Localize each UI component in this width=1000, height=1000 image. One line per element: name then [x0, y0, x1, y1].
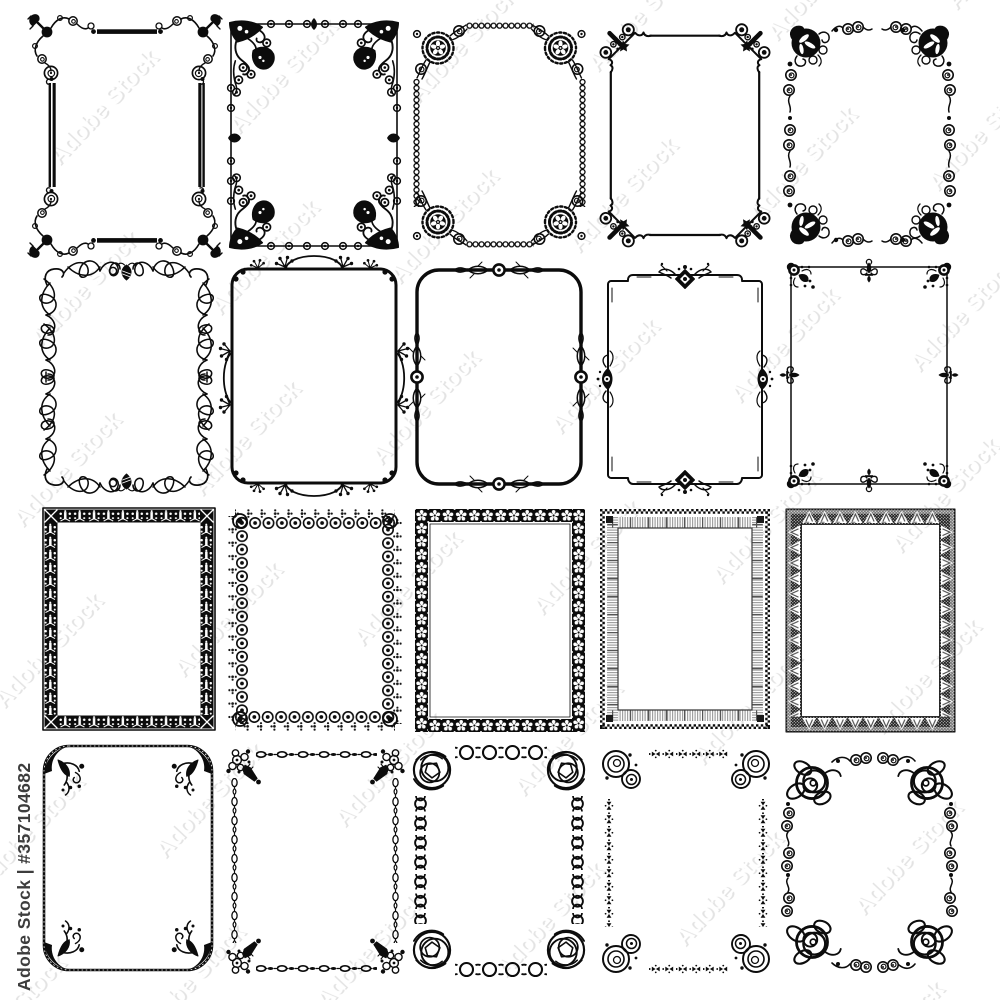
svg-text:Adobe Stock | #357104682: Adobe Stock | #357104682: [14, 762, 34, 991]
